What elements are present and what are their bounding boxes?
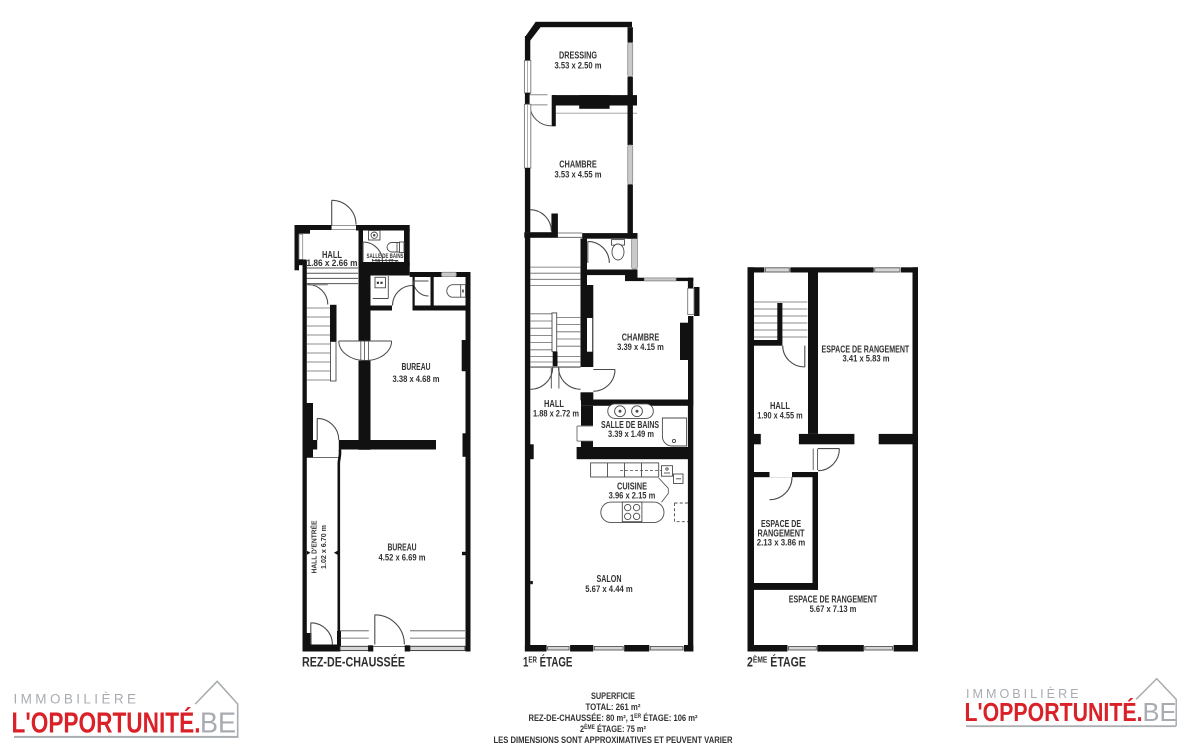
svg-text:1.02 x 6.70 m: 1.02 x 6.70 m bbox=[319, 525, 328, 569]
svg-text:5.67 x 7.13 m: 5.67 x 7.13 m bbox=[810, 604, 857, 614]
svg-text:BUREAU: BUREAU bbox=[402, 362, 431, 373]
svg-text:1.90 x 4.55 m: 1.90 x 4.55 m bbox=[757, 411, 802, 421]
svg-text:HALL D'ENTRÉE: HALL D'ENTRÉE bbox=[310, 520, 319, 573]
svg-text:TOTAL: 261 m²: TOTAL: 261 m² bbox=[586, 702, 641, 712]
svg-text:REZ-DE-CHAUSSÉE: 80 m², 1ER É: REZ-DE-CHAUSSÉE: 80 m², 1ER ÉTAGE: 106 m… bbox=[529, 713, 698, 723]
svg-text:3.96 x 2.15 m: 3.96 x 2.15 m bbox=[609, 491, 656, 501]
svg-text:3.53 x 2.50 m: 3.53 x 2.50 m bbox=[555, 61, 602, 71]
svg-text:3.39 x 1.49 m: 3.39 x 1.49 m bbox=[608, 429, 654, 439]
svg-text:3.41 x 5.83 m: 3.41 x 5.83 m bbox=[843, 354, 890, 364]
svg-text:SUPERFICIE: SUPERFICIE bbox=[591, 691, 635, 701]
svg-text:IMMOBILIÈRE: IMMOBILIÈRE bbox=[14, 692, 140, 707]
svg-text:3.53 x 4.55 m: 3.53 x 4.55 m bbox=[555, 170, 602, 180]
svg-text:REZ-DE-CHAUSSÉE: REZ-DE-CHAUSSÉE bbox=[302, 655, 405, 670]
svg-text:BE: BE bbox=[200, 707, 236, 739]
svg-text:1.86 x 2.66 m: 1.86 x 2.66 m bbox=[307, 258, 358, 268]
svg-text:1.88 x 2.72 m: 1.88 x 2.72 m bbox=[533, 409, 579, 419]
svg-text:5.67 x 4.44 m: 5.67 x 4.44 m bbox=[585, 584, 633, 594]
svg-text:2.13 x 3.86 m: 2.13 x 3.86 m bbox=[757, 538, 806, 548]
svg-text:4.52 x 6.69 m: 4.52 x 6.69 m bbox=[379, 553, 426, 563]
svg-text:L'OPPORTUNITÉ.: L'OPPORTUNITÉ. bbox=[965, 698, 1143, 727]
svg-text:BE: BE bbox=[1143, 699, 1177, 727]
svg-text:L'OPPORTUNITÉ.: L'OPPORTUNITÉ. bbox=[12, 707, 201, 739]
svg-text:3.39 x 4.15 m: 3.39 x 4.15 m bbox=[617, 342, 664, 352]
svg-text:3.38 x 4.68 m: 3.38 x 4.68 m bbox=[393, 374, 440, 384]
svg-text:LES DIMENSIONS SONT APPROXIMAT: LES DIMENSIONS SONT APPROXIMATIVES ET PE… bbox=[494, 735, 733, 745]
